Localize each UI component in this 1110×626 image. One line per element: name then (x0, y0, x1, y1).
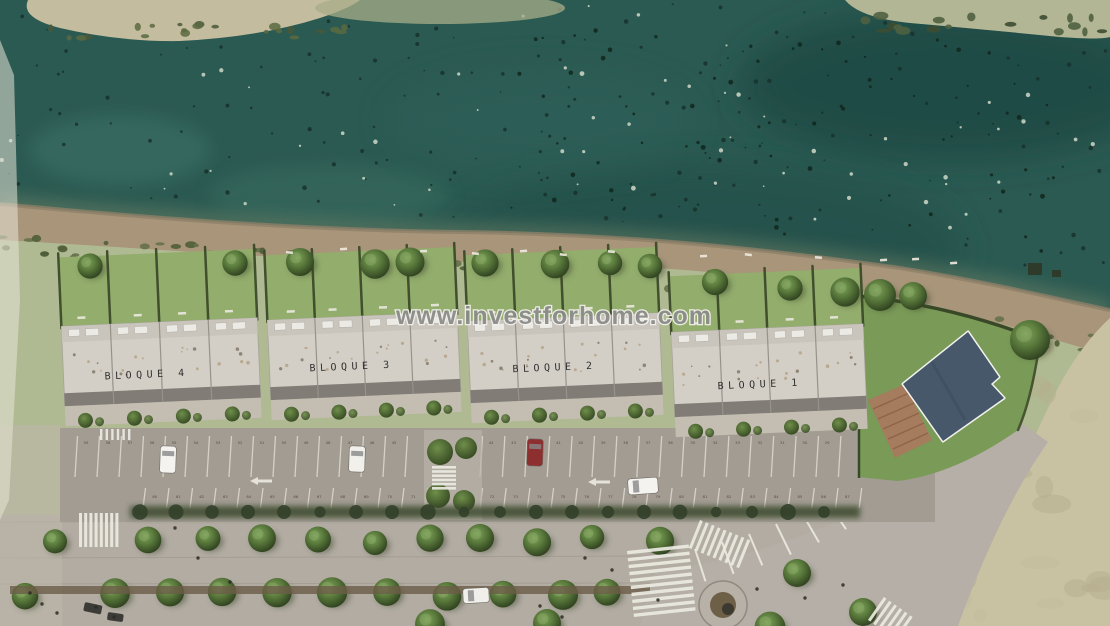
scrub-bush (194, 244, 199, 248)
water-speckle (164, 188, 166, 190)
water-speckle (36, 64, 38, 66)
water-speckle (1067, 62, 1071, 66)
water-speckle (537, 54, 540, 57)
parking-bay-number: 74 (537, 494, 542, 499)
water-speckle (1057, 133, 1059, 135)
water-speckle (831, 134, 835, 138)
parking-bay-number: 79 (655, 494, 660, 499)
hedge-bump (314, 506, 325, 517)
water-speckle (1017, 115, 1022, 120)
parking-bay-number: 67 (317, 494, 322, 499)
sunbed (950, 261, 957, 264)
water-speckle (440, 71, 444, 75)
roof-box (322, 321, 333, 328)
water-speckle (608, 48, 613, 53)
water-speckle (955, 96, 958, 99)
water-speckle (913, 95, 915, 97)
vegetation-clump (177, 23, 182, 26)
watermark-text: www.investforhome.com (395, 302, 712, 330)
water-speckle (888, 194, 891, 197)
crosswalk-bar (432, 487, 456, 490)
vegetation-clump (269, 23, 281, 31)
water-speckle (714, 182, 717, 185)
vegetation-clump (1005, 22, 1017, 27)
water-speckle (788, 216, 792, 220)
parking-bay-number: 57 (128, 440, 133, 445)
water-speckle (736, 92, 740, 96)
water-speckle (1091, 142, 1095, 146)
water-speckle (471, 71, 474, 74)
water-speckle (728, 80, 733, 85)
vegetation-clump (48, 24, 53, 32)
crosswalk-bar (111, 429, 113, 440)
water-speckle (17, 135, 19, 137)
water-speckle (623, 208, 626, 211)
water-speckle (744, 147, 746, 149)
water-speckle (1017, 64, 1019, 66)
water-speckle (317, 200, 320, 203)
water-speckle (567, 105, 570, 108)
water-speckle (640, 46, 643, 49)
crosswalk-bar (128, 429, 130, 440)
hedge-bump (459, 507, 470, 518)
parking-bay-number: 48 (326, 440, 331, 445)
water-speckle (315, 60, 317, 62)
water-speckle (407, 57, 409, 59)
water-speckle (225, 104, 229, 108)
water-speckle (630, 183, 633, 186)
vegetation-clump (896, 27, 911, 35)
roundabout-planter (699, 581, 747, 626)
water-speckle (850, 172, 853, 175)
parking-bay-number: 60 (152, 494, 157, 499)
vegetation-clump (141, 34, 149, 38)
water-speckle (423, 70, 425, 72)
water-speckle (568, 86, 570, 88)
water-speckle (564, 66, 567, 69)
parking-bay-number: 51 (260, 440, 265, 445)
water-speckle (724, 92, 726, 94)
terrace-furniture (786, 318, 794, 321)
water-speckle (699, 71, 702, 74)
parking-bay-number: 69 (364, 494, 369, 499)
water-speckle (204, 169, 208, 173)
vegetation-clump (211, 25, 219, 29)
island-bush (455, 437, 477, 459)
water-speckle (322, 57, 325, 60)
crosswalk-bar (115, 513, 118, 547)
crosswalk-bar (432, 470, 456, 473)
hedge-bump (673, 505, 688, 520)
water-speckle (795, 124, 797, 126)
vegetation-clump (1054, 28, 1064, 35)
water-speckle (1097, 169, 1101, 173)
hedge-bump (637, 505, 651, 519)
water-speckle (341, 131, 345, 135)
water-speckle (943, 175, 948, 180)
water-speckle (62, 71, 64, 73)
parking-bay-number: 29 (825, 440, 830, 445)
water-speckle (929, 180, 931, 182)
water-speckle (786, 166, 788, 168)
parking-bay-number: 66 (293, 494, 298, 499)
water-speckle (573, 34, 576, 37)
scrub-bush (32, 235, 41, 242)
crosswalk-bar (106, 429, 108, 440)
water-speckle (658, 214, 662, 218)
water-speckle (990, 173, 993, 176)
water-speckle (1022, 144, 1026, 148)
water-speckle (540, 179, 543, 182)
parking-bay-number: 39 (601, 440, 606, 445)
aerial-site-plan: 5958575655545352515049484746454443424140… (0, 0, 1110, 626)
terrace-furniture (225, 310, 233, 313)
water-speckle (672, 3, 674, 5)
water-speckle (763, 115, 765, 117)
roof-box (134, 326, 147, 334)
water-speckle (989, 198, 991, 200)
water-speckle (650, 194, 653, 197)
terrace-furniture (134, 314, 142, 317)
scrub-bush (140, 243, 150, 249)
parking-bay-number: 64 (246, 494, 251, 499)
parking-bay-number: 62 (199, 494, 204, 499)
beach-structure (1028, 263, 1042, 275)
roof-box (339, 320, 352, 328)
water-speckle (604, 216, 609, 221)
vegetation-clump (192, 23, 202, 29)
water-speckle (573, 98, 576, 101)
parking-bay-number: 83 (750, 494, 755, 499)
parking-bay-number: 58 (106, 440, 111, 445)
water-speckle (453, 171, 457, 175)
vegetation-clump (135, 23, 141, 31)
water-speckle (987, 51, 991, 55)
water-speckle (430, 184, 432, 186)
parking-bay-number: 33 (735, 440, 740, 445)
water-speckle (818, 208, 821, 211)
water-speckle (556, 142, 558, 144)
roof-box (232, 322, 245, 330)
water-speckle (1024, 235, 1027, 238)
hedge-bump (277, 505, 291, 519)
water-speckle (321, 91, 324, 94)
water-speckle (757, 125, 760, 128)
terrace-furniture (77, 316, 85, 319)
sunbed (340, 248, 347, 251)
water-speckle (1024, 168, 1027, 171)
crosswalk-bar (122, 429, 124, 440)
pedestrian (841, 583, 844, 586)
water-speckle (945, 183, 947, 185)
water-speckle (631, 186, 636, 191)
water-speckle (803, 11, 805, 13)
water-speckle (1102, 261, 1105, 264)
sunbed (520, 249, 527, 252)
water-speckle (960, 126, 962, 128)
parking-bay-number: 82 (726, 494, 731, 499)
vegetation-clump (945, 25, 952, 30)
water-speckle (622, 221, 624, 223)
water-speckle (561, 40, 565, 44)
roof-box (369, 319, 380, 326)
water-speckle (637, 13, 640, 16)
water-speckle (992, 123, 994, 125)
water-speckle (503, 128, 507, 132)
water-speckle (910, 32, 915, 37)
vegetation-clump (67, 35, 72, 40)
water-speckle (808, 166, 813, 171)
water-speckle (632, 112, 635, 115)
parking-bay-number: 54 (194, 440, 199, 445)
water-speckle (988, 133, 990, 135)
water-speckle (1081, 246, 1085, 250)
water-speckle (573, 191, 577, 195)
water-speckle (302, 185, 307, 190)
hedge-bump (818, 506, 830, 518)
sand-blotch (1036, 598, 1064, 609)
scrub-bush (995, 316, 1004, 322)
water-speckle (732, 184, 735, 187)
vegetation-clump (341, 24, 348, 31)
water-speckle (864, 56, 866, 58)
water-speckle (348, 25, 351, 28)
water-speckle (687, 84, 691, 88)
vegetation-clump (1039, 15, 1047, 20)
hedge-bump (602, 506, 614, 518)
water-speckle (75, 123, 78, 126)
roof-box (774, 331, 785, 338)
vegetation-clump (1082, 27, 1087, 36)
parking-bay-number: 53 (216, 440, 221, 445)
vegetation-clump (1067, 13, 1073, 23)
parking-bay-number: 41 (556, 440, 561, 445)
water-speckle (271, 132, 273, 134)
parking-bay-number: 81 (703, 494, 708, 499)
water-speckle (720, 64, 722, 66)
pedestrian (40, 602, 43, 605)
water-speckle (895, 52, 898, 55)
water-speckle (977, 112, 979, 114)
parking-bay-number: 68 (340, 494, 345, 499)
parking-bay-number: 38 (623, 440, 628, 445)
water-speckle (299, 145, 301, 147)
parking-bay-number: 30 (802, 440, 807, 445)
parking-bay-number: 73 (513, 494, 518, 499)
water-speckle (449, 178, 452, 181)
water-speckle (542, 95, 545, 98)
water-speckle (944, 45, 947, 48)
water-speckle (453, 37, 455, 39)
water-speckle (758, 145, 761, 148)
crosswalk-bar (84, 513, 87, 547)
parking-bay-number: 72 (489, 494, 494, 499)
water-speckle (1045, 121, 1049, 125)
water-speckle (999, 209, 1003, 213)
water-speckle (956, 48, 961, 53)
pedestrian (28, 591, 31, 594)
water-speckle (543, 193, 547, 197)
water-speckle (592, 116, 595, 119)
water-speckle (58, 112, 61, 115)
water-speckle (1021, 119, 1025, 123)
vegetation-clump (289, 35, 299, 39)
parking-bay-number: 59 (84, 440, 89, 445)
water-speckle (904, 162, 908, 166)
water-speckle (373, 140, 378, 145)
parking-bay-number: 34 (713, 440, 718, 445)
water-speckle (308, 52, 312, 56)
water-speckle (868, 78, 872, 82)
vegetation-clump (967, 13, 975, 22)
water-speckle (684, 198, 688, 202)
water-speckle (783, 233, 786, 236)
vegetation-clump (873, 12, 888, 20)
water-speckle (754, 79, 758, 83)
terrace-furniture (178, 312, 186, 315)
water-speckle (326, 92, 330, 96)
hedge-bump (241, 505, 255, 519)
water-speckle (323, 141, 326, 144)
water-speckle (360, 149, 364, 153)
water-speckle (1014, 83, 1016, 85)
water-speckle (308, 128, 311, 131)
crosswalk-bar (95, 513, 98, 547)
vegetation-clump (330, 27, 340, 33)
terrace-furniture (830, 316, 838, 319)
pedestrian (803, 596, 806, 599)
water-speckle (1060, 251, 1063, 254)
water-speckle (148, 139, 152, 143)
pedestrian (656, 598, 659, 601)
water-speckle (738, 111, 741, 114)
water-speckle (563, 137, 566, 140)
sand-blotch (1021, 556, 1061, 569)
water-speckle (812, 121, 816, 125)
roof-box (839, 328, 852, 336)
promenade-planter-strip (10, 586, 650, 594)
sunbed (700, 255, 707, 258)
parking-bay-number: 71 (411, 494, 416, 499)
parking-bay-number: 61 (176, 494, 181, 499)
water-speckle (560, 149, 564, 153)
water-speckle (719, 6, 723, 10)
water-speckle (756, 60, 759, 63)
crosswalk-bar (432, 479, 456, 482)
parking-bay-number: 65 (270, 494, 275, 499)
water-speckle (373, 126, 376, 129)
terrace-furniture (287, 310, 295, 313)
parking-bay-number: 76 (584, 494, 589, 499)
sand-blotch (1036, 476, 1054, 499)
pedestrian (94, 605, 97, 608)
water-speckle (1036, 77, 1040, 81)
red-car (527, 439, 544, 467)
water-speckle (130, 187, 132, 189)
water-speckle (951, 135, 953, 137)
water-speckle (160, 54, 162, 56)
terrace-furniture (735, 320, 743, 323)
water-speckle (419, 213, 423, 217)
water-speckle (64, 49, 68, 53)
water-speckle (362, 177, 365, 180)
water-speckle (625, 105, 627, 107)
hedge-bump (168, 504, 183, 519)
parking-bay-number: 87 (845, 494, 850, 499)
vegetation-clump (85, 34, 92, 40)
parking-bay-number: 77 (608, 494, 613, 499)
crosswalk-bar (100, 513, 103, 547)
parking-bay-number: 50 (282, 440, 287, 445)
water-speckle (209, 170, 211, 172)
water-speckle (731, 139, 734, 142)
water-speckle (580, 71, 585, 76)
water-speckle (677, 170, 681, 174)
water-speckle (758, 204, 760, 206)
pedestrian (610, 568, 613, 571)
water-speckle (908, 224, 911, 227)
sand-blotch (974, 609, 988, 621)
water-speckle (748, 97, 751, 100)
crosswalk-bar (110, 513, 113, 547)
pedestrian (173, 526, 176, 529)
water-speckle (582, 150, 585, 153)
hedge-bump (420, 504, 435, 519)
water-speckle (1046, 104, 1049, 107)
vegetation-clump (264, 30, 269, 34)
water-speckle (429, 151, 432, 154)
water-speckle (1001, 189, 1005, 193)
water-speckle (965, 213, 968, 216)
hedge-bump (529, 505, 543, 519)
parking-bay-number: 32 (758, 440, 763, 445)
water-speckle (428, 189, 431, 192)
roof-box (743, 332, 756, 340)
water-speckle (730, 136, 732, 138)
water-speckle (685, 145, 688, 148)
water-speckle (948, 226, 952, 230)
water-speckle (709, 157, 711, 159)
water-speckle (770, 155, 773, 158)
water-speckle (193, 105, 195, 107)
vegetation-clump (1097, 29, 1107, 33)
parking-bay-number: 44 (489, 440, 494, 445)
water-speckle (697, 203, 700, 206)
water-speckle (186, 47, 188, 49)
water-speckle (1039, 249, 1043, 253)
water-speckle (1040, 194, 1045, 199)
water-speckle (110, 122, 112, 124)
roof-box (68, 329, 79, 336)
sand-blotch (1032, 495, 1071, 514)
parking-bay-number: 35 (690, 440, 695, 445)
parking-bay-number: 84 (774, 494, 779, 499)
water-speckle (719, 148, 723, 152)
water-speckle (664, 79, 667, 82)
water-speckle (884, 137, 887, 140)
water-speckle (704, 152, 706, 154)
water-speckle (964, 243, 967, 246)
water-speckle (763, 185, 765, 187)
crosswalk-bar (432, 466, 456, 469)
water-speckle (415, 42, 419, 46)
water-speckle (717, 158, 722, 163)
water-speckle (1023, 264, 1026, 267)
water-speckle (698, 176, 702, 180)
water-speckle (1026, 93, 1030, 97)
water-speckle (327, 19, 331, 23)
water-speckle (404, 95, 406, 97)
